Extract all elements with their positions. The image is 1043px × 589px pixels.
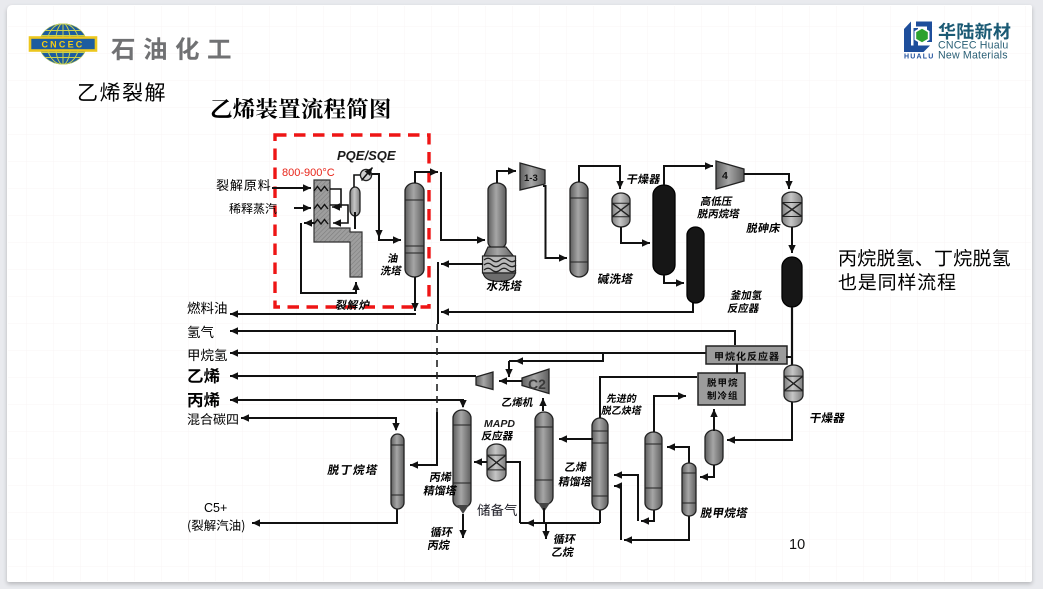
- svg-text:10: 10: [789, 537, 805, 553]
- svg-text:1-3: 1-3: [524, 173, 538, 184]
- svg-text:PQE/SQE: PQE/SQE: [337, 148, 396, 163]
- svg-text:C5+: C5+: [204, 501, 227, 515]
- svg-text:800-900°C: 800-900°C: [282, 167, 335, 179]
- svg-text:New Materials: New Materials: [938, 49, 1008, 61]
- svg-text:MAPD: MAPD: [484, 418, 515, 430]
- svg-text:CNCEC: CNCEC: [41, 40, 84, 50]
- svg-text:4: 4: [722, 170, 728, 182]
- svg-text:HUALU: HUALU: [904, 54, 935, 61]
- svg-text:C2: C2: [528, 376, 546, 392]
